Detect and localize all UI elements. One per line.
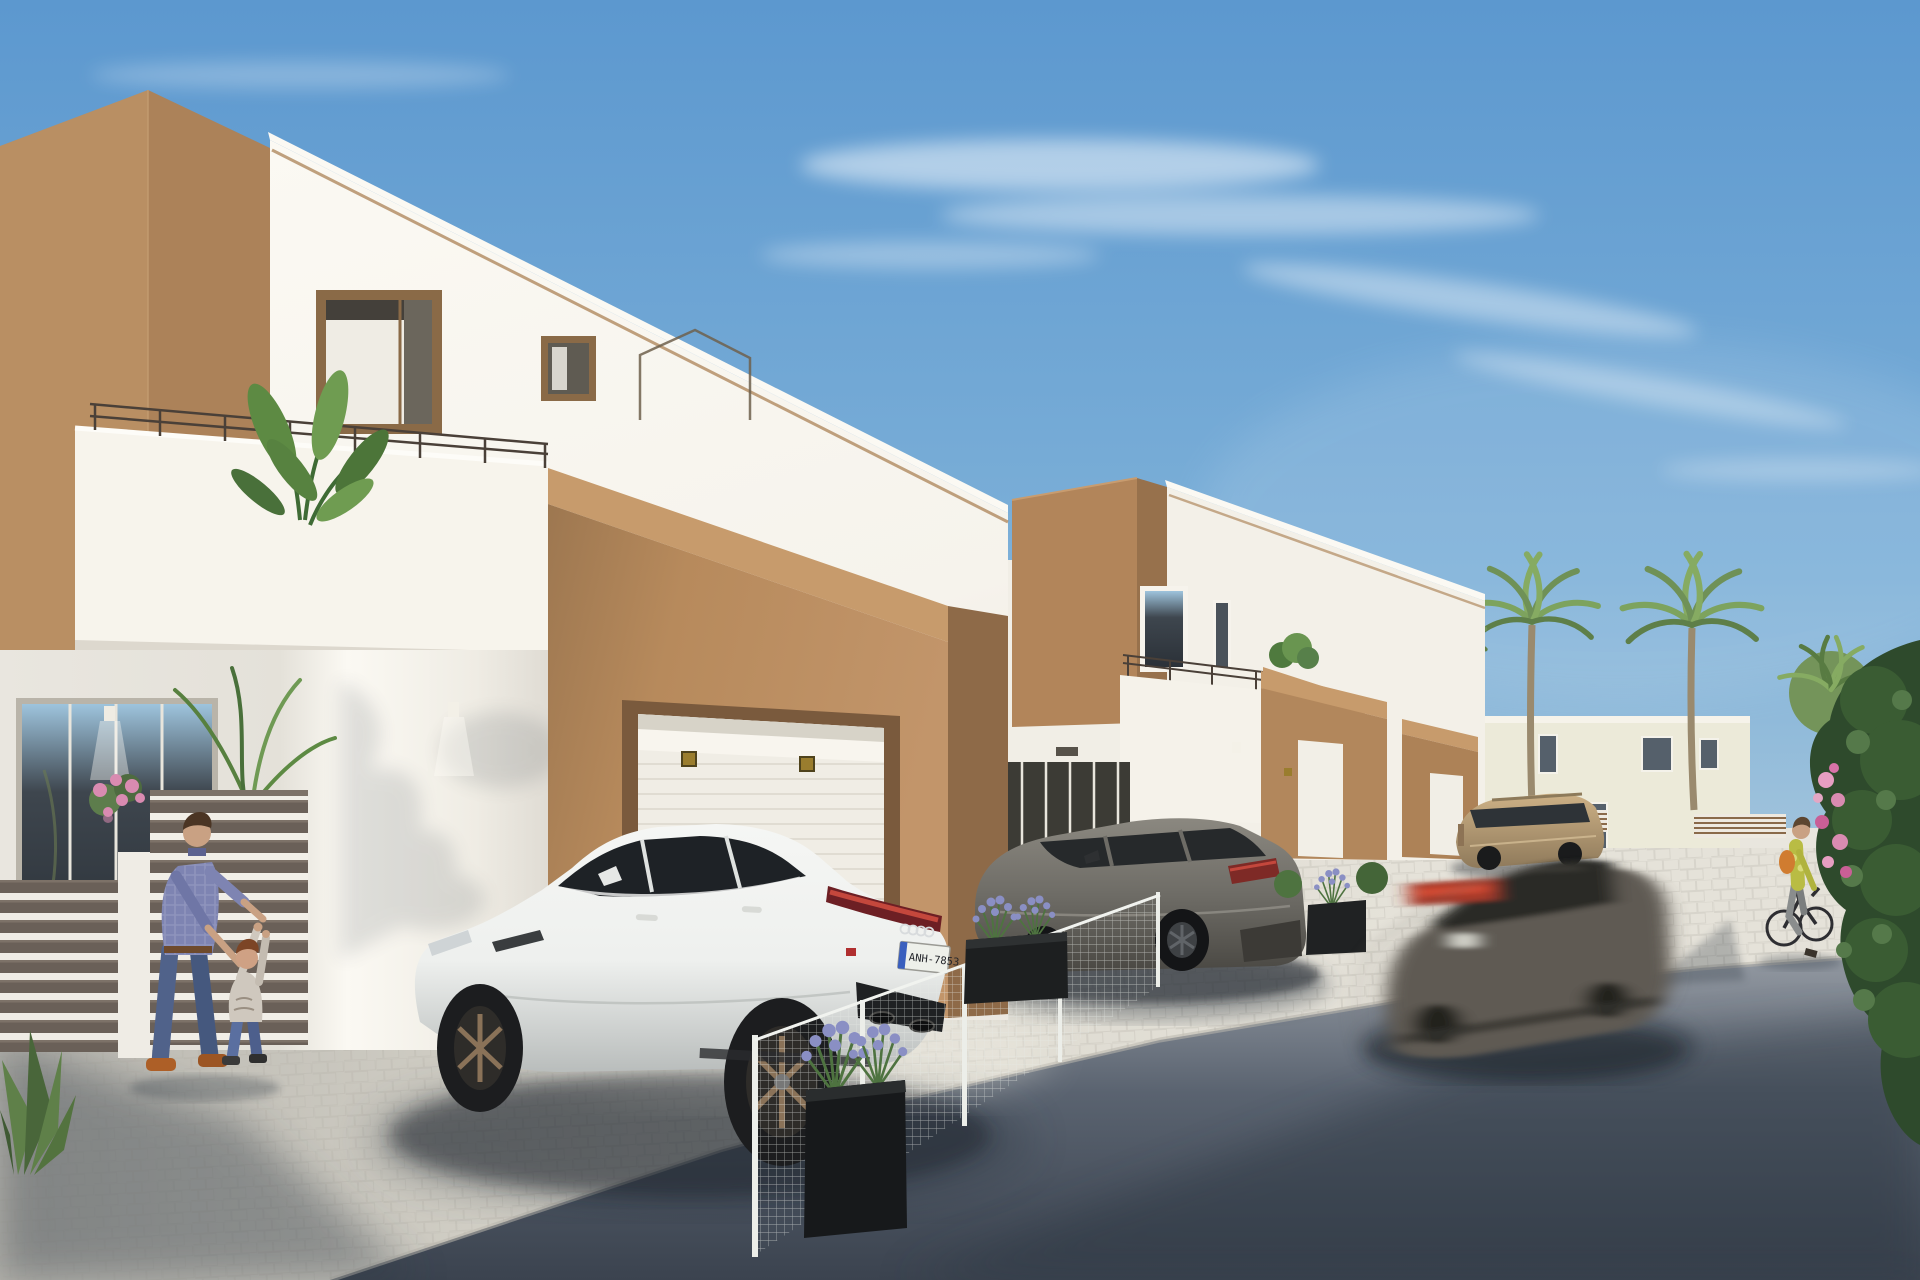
rs-badge — [846, 948, 856, 956]
wall-vent — [1056, 747, 1078, 756]
house3-porch-a — [1261, 671, 1387, 860]
door-handle — [742, 906, 762, 913]
house1-window-small — [541, 336, 596, 401]
door-handle — [636, 914, 658, 921]
orange-bag — [1779, 850, 1795, 874]
fence-pillar — [118, 852, 152, 1058]
house3-door-a — [1298, 740, 1343, 858]
wall-lamp-small — [1232, 742, 1241, 753]
terrace-parapet — [75, 428, 548, 662]
render-canvas: ANH-7853 — [0, 0, 1920, 1280]
belt — [164, 946, 212, 953]
